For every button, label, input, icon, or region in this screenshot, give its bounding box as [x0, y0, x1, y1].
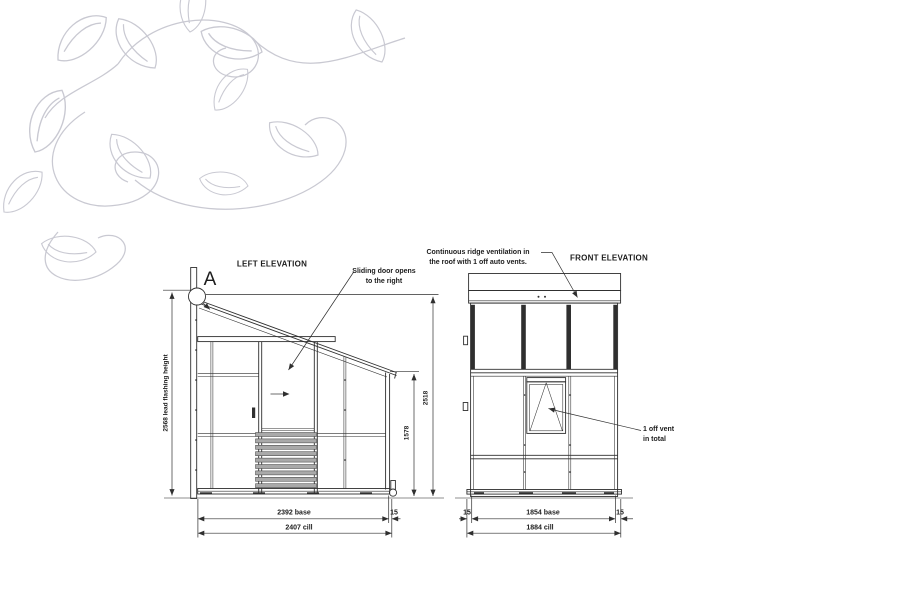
dim-flashing-height: 2568 lead flashing height	[163, 354, 170, 431]
dim-front-cill: 1884 cill	[526, 524, 553, 531]
sliding-door	[252, 342, 317, 494]
door-louvre-slats	[256, 433, 317, 488]
decorative-leaf-pattern	[0, 0, 405, 280]
technical-drawing-canvas	[0, 0, 900, 602]
vent-count-note-line1: 1 off vent	[643, 426, 674, 433]
greenhouse-technical-drawing-page: LEFT ELEVATION FRONT ELEVATION A Continu…	[0, 0, 900, 602]
dim-front-base: 1854 base	[526, 510, 559, 517]
ridge-vent-note-line2: the roof with 1 off auto vents.	[429, 259, 527, 266]
dim-front-right-offset: 15	[616, 510, 624, 517]
dimension-lines	[163, 290, 633, 537]
left-elevation-title: LEFT ELEVATION	[237, 260, 307, 269]
dim-left-base: 2392 base	[277, 510, 310, 517]
detail-marker-label: A	[204, 269, 217, 291]
front-elevation-title: FRONT ELEVATION	[570, 254, 648, 263]
dim-left-cill: 2407 cill	[285, 524, 312, 531]
door-lock	[252, 408, 255, 419]
sliding-door-note-line2: to the right	[366, 278, 403, 285]
door-note-leader	[289, 272, 355, 371]
dim-ridge-height: 2518	[423, 391, 430, 405]
sliding-door-note: Sliding door opens to the right	[352, 267, 415, 287]
vent-count-note-line2: in total	[643, 436, 666, 443]
front-elevation-drawing	[463, 274, 621, 497]
door-handle	[463, 403, 468, 411]
door-slide-arrow	[271, 391, 290, 397]
dim-front-left-offset: 15	[463, 510, 471, 517]
ridge-vent-note-line1: Continuous ridge ventilation in	[426, 249, 529, 256]
vent-count-note: 1 off vent in total	[643, 425, 674, 445]
left-elevation-drawing	[189, 268, 397, 499]
vent-note-leader	[549, 409, 642, 431]
roof-face	[469, 274, 621, 291]
dim-eaves-height: 1578	[404, 426, 411, 440]
downpipe	[391, 481, 396, 490]
dim-left-cill-offset: 15	[390, 510, 398, 517]
leader-arrows	[289, 253, 642, 431]
side-handle	[464, 336, 468, 345]
roof-vent-window	[527, 378, 566, 434]
sliding-door-note-line1: Sliding door opens	[352, 268, 415, 275]
downpipe-shoe	[389, 489, 396, 496]
ridge-vent-note: Continuous ridge ventilation in the roof…	[426, 248, 529, 268]
